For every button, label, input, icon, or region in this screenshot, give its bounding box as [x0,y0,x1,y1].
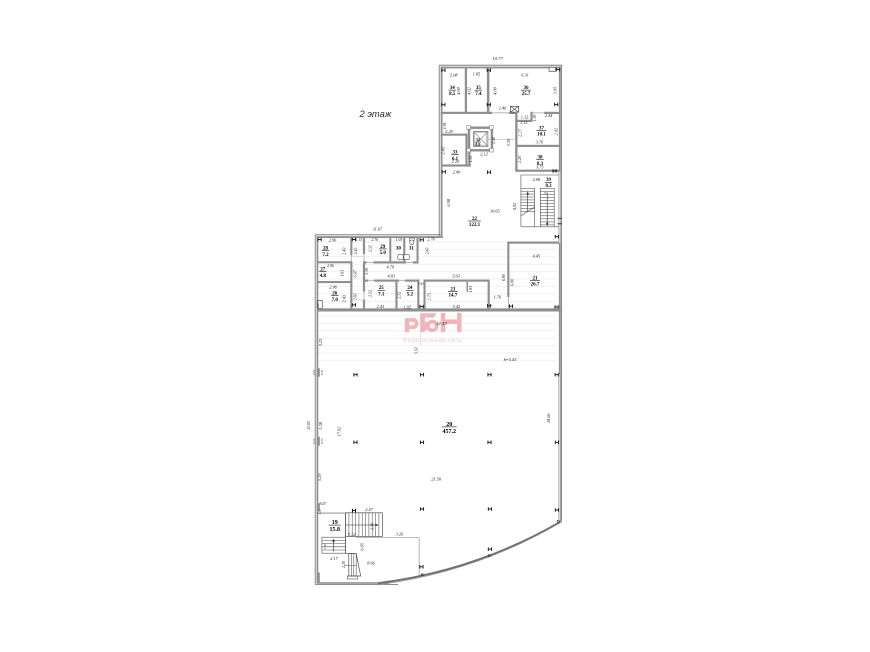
svg-text:1.50: 1.50 [323,543,327,549]
svg-text:1.12: 1.12 [521,114,529,119]
svg-text:2.40: 2.40 [453,169,461,174]
svg-text:5.51: 5.51 [415,347,419,354]
svg-text:2.82: 2.82 [353,293,357,300]
svg-text:6.67: 6.67 [352,269,357,277]
svg-text:1.92: 1.92 [403,304,411,309]
svg-text:10.77: 10.77 [492,56,503,61]
svg-text:5.42: 5.42 [453,304,461,309]
svg-text:2.46: 2.46 [499,105,507,110]
svg-text:10.1: 10.1 [537,133,546,138]
svg-text:0.75: 0.75 [320,369,324,375]
svg-text:2.96: 2.96 [329,238,337,243]
svg-text:6.98: 6.98 [446,198,451,206]
svg-text:4.00: 4.00 [456,86,461,94]
svg-text:2.32: 2.32 [368,245,372,252]
svg-text:4.45: 4.45 [533,254,541,259]
svg-text:3.76: 3.76 [536,139,544,144]
svg-text:3.95: 3.95 [552,86,557,94]
svg-text:31: 31 [409,246,415,251]
svg-text:7.0: 7.0 [332,298,339,303]
svg-text:2 этаж: 2 этаж [359,108,392,119]
svg-text:1.91: 1.91 [443,122,447,129]
svg-text:2.76: 2.76 [371,238,378,242]
svg-text:3.9: 3.9 [475,142,480,147]
svg-text:25.7: 25.7 [522,92,531,97]
svg-text:0.71: 0.71 [312,438,316,444]
svg-text:11.07: 11.07 [373,226,383,231]
svg-text:5.29: 5.29 [317,473,322,481]
svg-text:2.96: 2.96 [329,284,337,289]
svg-text:4.00: 4.00 [492,86,497,94]
svg-text:2.43: 2.43 [342,247,347,255]
svg-text:6.00: 6.00 [509,278,514,286]
svg-text:2.32: 2.32 [368,290,372,297]
svg-text:1.81: 1.81 [469,286,473,293]
svg-text:31.05: 31.05 [307,421,311,430]
svg-text:2.92: 2.92 [553,127,558,135]
svg-text:1.39: 1.39 [365,268,369,275]
svg-text:2.08: 2.08 [450,72,458,77]
svg-text:5.2: 5.2 [407,292,414,297]
svg-text:2.10: 2.10 [371,523,375,530]
svg-text:3.75: 3.75 [536,165,544,170]
svg-text:21.50: 21.50 [431,477,442,482]
svg-text:2.32: 2.32 [397,292,401,299]
svg-text:2.27: 2.27 [517,128,522,136]
svg-text:7.2: 7.2 [322,253,329,258]
svg-text:8.66: 8.66 [367,561,375,566]
svg-text:2.96: 2.96 [327,264,334,268]
svg-text:2.20: 2.20 [492,137,496,144]
svg-text:2.43: 2.43 [426,248,430,255]
svg-text:1.15: 1.15 [356,238,362,242]
svg-text:1.39: 1.39 [533,115,537,122]
svg-text:5.63: 5.63 [452,274,460,279]
svg-text:2.20: 2.20 [517,155,522,163]
svg-text:8.5: 8.5 [449,92,456,97]
svg-text:1.61: 1.61 [341,270,345,277]
svg-text:0.75: 0.75 [320,438,324,444]
svg-text:4.02: 4.02 [466,86,471,94]
svg-text:6.05: 6.05 [359,542,364,550]
svg-text:1.51: 1.51 [318,509,322,515]
svg-text:6.90: 6.90 [502,274,506,281]
svg-text:0.67: 0.67 [316,302,320,308]
svg-text:2.98: 2.98 [533,177,541,182]
svg-text:2.43: 2.43 [354,248,358,255]
svg-text:2.43: 2.43 [377,304,385,309]
svg-text:2.47: 2.47 [365,507,373,512]
svg-text:2.43: 2.43 [342,295,347,303]
svg-text:6.31: 6.31 [521,72,529,77]
svg-text:1.85: 1.85 [473,72,481,77]
svg-text:2.73: 2.73 [426,293,431,301]
svg-text:5.38: 5.38 [318,421,323,429]
svg-text:30: 30 [396,246,402,251]
svg-text:457.2: 457.2 [442,429,456,435]
svg-text:21.43: 21.43 [436,321,447,326]
svg-text:26.7: 26.7 [531,283,540,288]
svg-text:0.27: 0.27 [321,502,327,506]
svg-text:2.76: 2.76 [427,236,435,241]
svg-text:2.29: 2.29 [452,159,460,164]
svg-text:2.44: 2.44 [545,113,553,118]
svg-text:122.1: 122.1 [469,223,481,228]
svg-text:Федеральная сеть: Федеральная сеть [403,337,463,344]
svg-text:15.8: 15.8 [329,527,340,533]
svg-text:5.0: 5.0 [380,251,387,256]
svg-text:2.17: 2.17 [330,556,338,561]
svg-text:4.79: 4.79 [387,265,395,270]
svg-text:14.7: 14.7 [449,294,458,299]
svg-text:17.92: 17.92 [336,426,341,437]
svg-text:1.12: 1.12 [520,120,528,125]
svg-text:5.12: 5.12 [348,532,356,537]
svg-text:4.83: 4.83 [388,274,396,279]
svg-text:0.82: 0.82 [418,282,424,286]
svg-text:8.3: 8.3 [546,184,553,189]
svg-text:1.05: 1.05 [395,238,402,242]
svg-text:2.10: 2.10 [342,561,346,568]
svg-text:5.39: 5.39 [506,138,511,146]
svg-text:5.23: 5.23 [318,339,323,347]
svg-text:1.76: 1.76 [494,295,502,300]
svg-text:h=5.43: h=5.43 [504,357,518,362]
svg-text:0.71: 0.71 [312,369,316,375]
svg-text:10.65: 10.65 [490,208,501,213]
svg-text:4.8: 4.8 [320,274,327,279]
svg-text:4.92: 4.92 [512,202,517,210]
svg-text:18.66: 18.66 [546,413,551,424]
svg-text:3.26: 3.26 [396,533,403,537]
svg-text:2.45: 2.45 [440,146,445,154]
svg-text:1.35: 1.35 [469,156,473,163]
svg-text:7.1: 7.1 [378,292,385,297]
svg-text:7.4: 7.4 [475,92,482,97]
svg-text:2.12: 2.12 [480,152,488,157]
